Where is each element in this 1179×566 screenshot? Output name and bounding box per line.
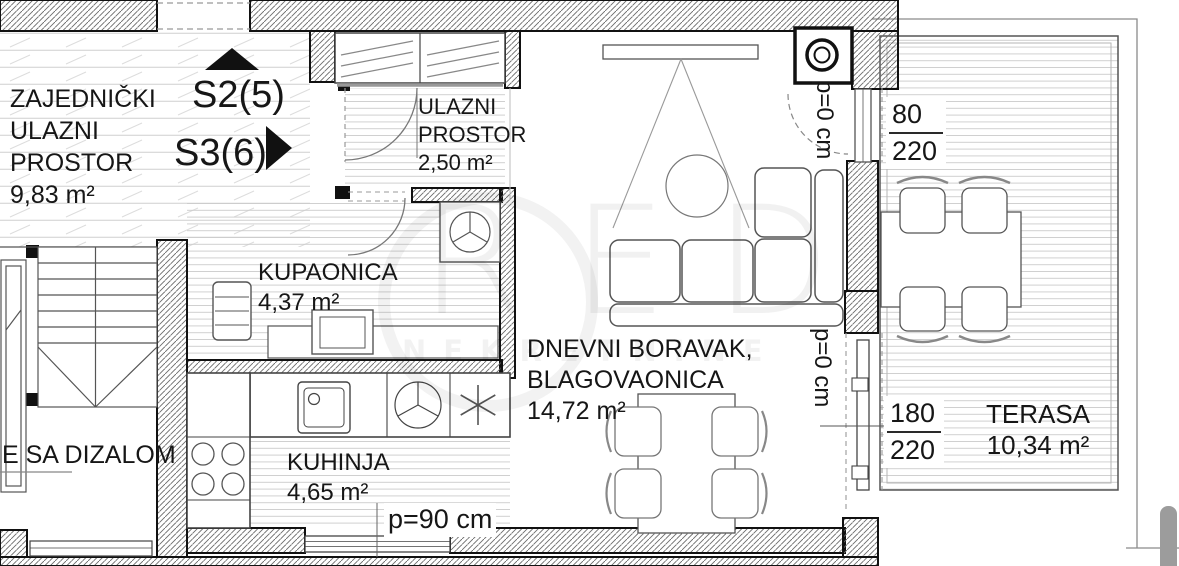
bathroom-label: KUPAONICA 4,37 m² bbox=[258, 258, 398, 318]
terrace-name: TERASA bbox=[968, 399, 1108, 430]
wall-top-left bbox=[0, 0, 157, 31]
bathroom-name: KUPAONICA bbox=[258, 258, 398, 288]
round-table bbox=[666, 155, 728, 217]
boiler-icon bbox=[795, 28, 852, 83]
wall-common-entry-divider bbox=[310, 31, 335, 82]
wall-bottom-kitchen bbox=[187, 528, 305, 553]
wall-stair-side bbox=[157, 240, 187, 557]
wall-bottom-strip bbox=[0, 557, 878, 566]
corner-sofa bbox=[610, 168, 843, 326]
terrace-slider-height: 220 bbox=[887, 433, 941, 466]
terrace-label: TERASA 10,34 m² bbox=[968, 399, 1108, 461]
terrace-area: 10,34 m² bbox=[968, 430, 1108, 461]
living-dining-label: DNEVNI BORAVAK, BLAGOVAONICA 14,72 m² bbox=[527, 334, 753, 427]
entry-name-1: ULAZNI bbox=[418, 93, 526, 121]
tv bbox=[603, 45, 758, 59]
bath-counter bbox=[268, 326, 498, 358]
terrace-slider-width: 180 bbox=[887, 398, 941, 433]
wall-entry-bath bbox=[412, 188, 502, 202]
terrace-slider-parapet: p=0 cm bbox=[808, 328, 836, 407]
unit-s3-label: S3(6) bbox=[174, 130, 267, 178]
kitchen-area: 4,65 m² bbox=[287, 478, 390, 508]
living-area: 14,72 m² bbox=[527, 396, 753, 427]
terrace-door-dimension: 80 220 bbox=[886, 97, 946, 169]
plan-linework bbox=[0, 0, 1179, 566]
bathroom-area: 4,37 m² bbox=[258, 288, 398, 318]
wall-wardrobe-cap bbox=[505, 31, 520, 88]
pillar bbox=[1160, 506, 1177, 566]
wall-bottom-left-stub bbox=[0, 530, 27, 557]
kitchen-label: KUHINJA 4,65 m² bbox=[287, 448, 390, 508]
common-entrance-name-2: ULAZNI bbox=[10, 115, 156, 147]
entry-label: ULAZNI PROSTOR 2,50 m² bbox=[418, 93, 526, 177]
common-entrance-name-1: ZAJEDNIČKI bbox=[10, 83, 156, 115]
wall-right-mid-end bbox=[845, 291, 878, 333]
stair-window bbox=[30, 541, 152, 556]
common-entrance-label: ZAJEDNIČKI ULAZNI PROSTOR 9,83 m² bbox=[10, 83, 156, 211]
unit-s2-label: S2(5) bbox=[192, 72, 285, 120]
entry-name-2: PROSTOR bbox=[418, 121, 526, 149]
top-opening-dashes bbox=[157, 3, 250, 29]
floor-plan: RED NEKRETNINE ZAJEDNIČKI ULAZNI PROSTOR… bbox=[0, 0, 1179, 566]
wall-bath-living bbox=[500, 188, 515, 378]
staircase-label: E SA DIZALOM bbox=[2, 440, 176, 471]
living-room-furniture bbox=[603, 45, 843, 533]
common-entrance-name-3: PROSTOR bbox=[10, 147, 156, 179]
wall-right-mid bbox=[847, 161, 878, 291]
kitchen-name: KUHINJA bbox=[287, 448, 390, 478]
kitchen-counter-left bbox=[187, 373, 250, 528]
terrace-door-width: 80 bbox=[889, 99, 943, 134]
common-entrance-area: 9,83 m² bbox=[10, 179, 156, 211]
living-name-1: DNEVNI BORAVAK, bbox=[527, 334, 753, 365]
wall-right-top bbox=[852, 31, 898, 89]
entry-area: 2,50 m² bbox=[418, 149, 526, 177]
elevator-door-mark bbox=[6, 310, 21, 330]
terrace-door-parapet: p=0 cm bbox=[810, 80, 838, 159]
terrace-slider-dimension: 180 220 bbox=[884, 396, 944, 468]
wardrobe bbox=[335, 33, 505, 85]
kitchen-window-parapet: p=90 cm bbox=[384, 503, 496, 537]
living-name-2: BLAGOVAONICA bbox=[527, 365, 753, 396]
terrace-door-height: 220 bbox=[889, 134, 943, 167]
wall-bottom-right-corner bbox=[843, 518, 878, 557]
tv-sightline-right bbox=[681, 59, 749, 228]
kitchen-counter bbox=[250, 373, 510, 437]
